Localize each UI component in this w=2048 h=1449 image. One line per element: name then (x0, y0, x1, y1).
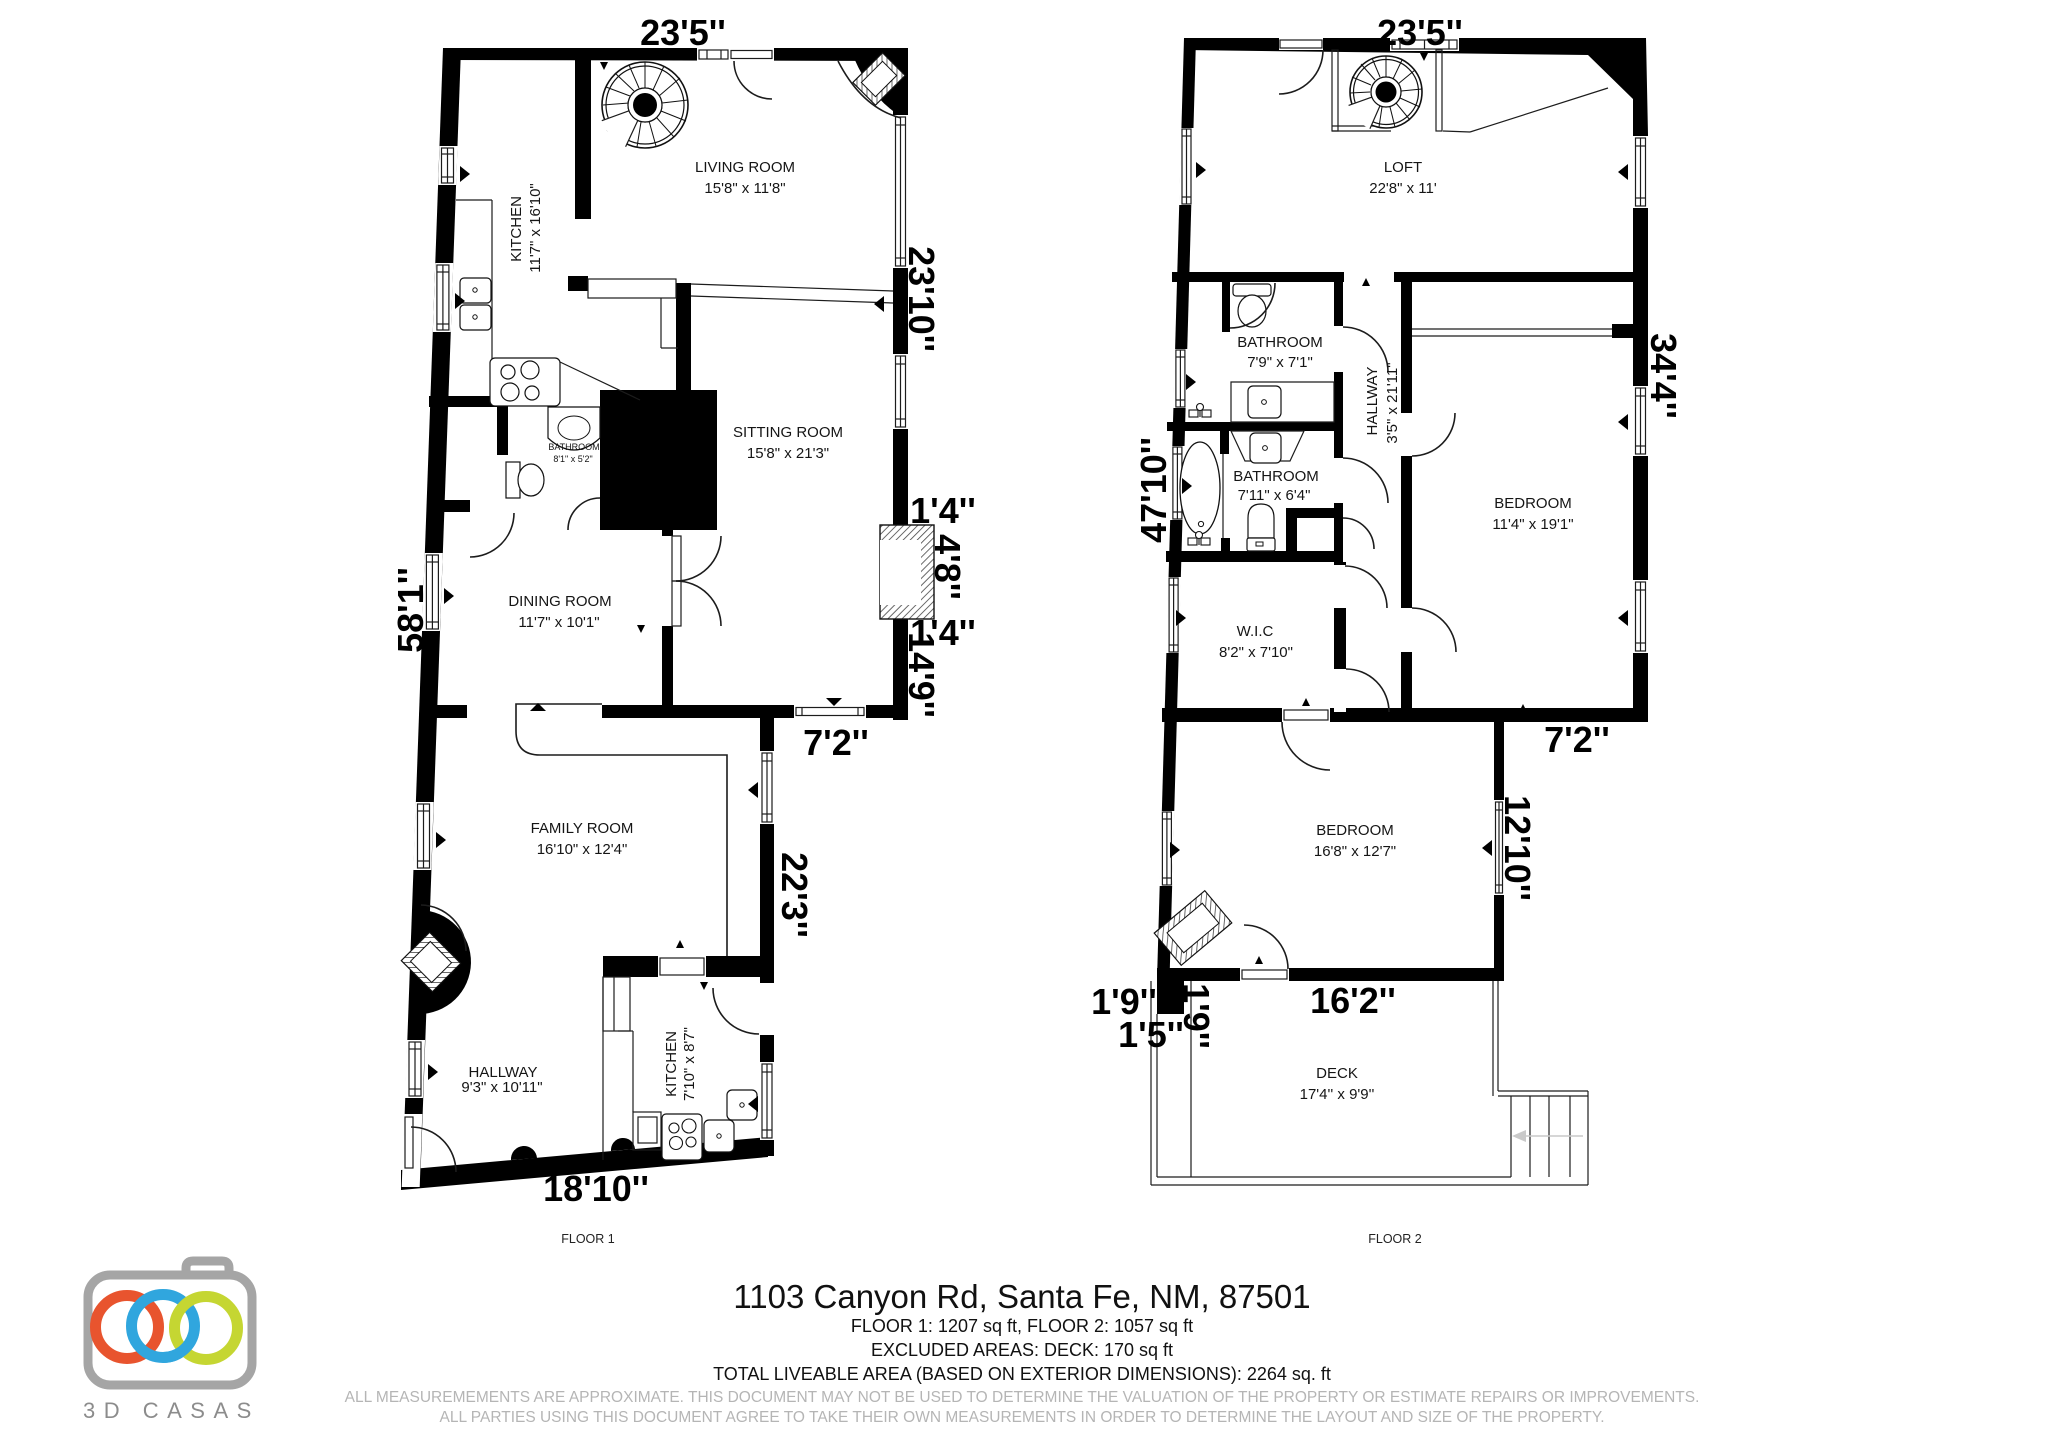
svg-text:1'9'': 1'9'' (1176, 983, 1217, 1049)
svg-text:KITCHEN: KITCHEN (508, 196, 525, 262)
svg-text:DINING ROOM: DINING ROOM (508, 593, 611, 610)
svg-text:FLOOR 1: FLOOR 1 (561, 1232, 615, 1246)
svg-text:23'10'': 23'10'' (901, 246, 942, 352)
svg-text:BATHROOM: BATHROOM (548, 442, 599, 452)
svg-text:16'2'': 16'2'' (1310, 980, 1396, 1021)
svg-text:11'7" x 16'10": 11'7" x 16'10" (527, 183, 544, 273)
svg-text:58'1'': 58'1'' (390, 567, 431, 653)
svg-text:15'8" x 21'3": 15'8" x 21'3" (747, 445, 829, 462)
svg-text:1103 Canyon Rd, Santa Fe, NM,: 1103 Canyon Rd, Santa Fe, NM, 87501 (733, 1278, 1310, 1315)
svg-text:1'5'': 1'5'' (1118, 1014, 1184, 1055)
svg-text:LIVING ROOM: LIVING ROOM (695, 159, 795, 176)
svg-text:11'7" x 10'1": 11'7" x 10'1" (518, 614, 599, 631)
svg-text:22'3'': 22'3'' (774, 852, 815, 938)
svg-text:47'10'': 47'10'' (1133, 437, 1174, 543)
svg-text:LOFT: LOFT (1384, 159, 1422, 176)
svg-text:7'2'': 7'2'' (803, 722, 869, 763)
svg-text:12'10'': 12'10'' (1497, 795, 1538, 901)
svg-text:16'10" x 12'4": 16'10" x 12'4" (537, 841, 628, 858)
svg-text:BEDROOM: BEDROOM (1316, 822, 1394, 839)
svg-text:HALLWAY: HALLWAY (1364, 367, 1381, 436)
svg-text:FLOOR 2: FLOOR 2 (1368, 1232, 1422, 1246)
svg-text:TOTAL LIVEABLE AREA (BASED ON: TOTAL LIVEABLE AREA (BASED ON EXTERIOR D… (713, 1364, 1331, 1384)
svg-text:FAMILY ROOM: FAMILY ROOM (531, 820, 634, 837)
svg-text:8'1" x 5'2": 8'1" x 5'2" (553, 454, 592, 464)
svg-text:7'9" x 7'1": 7'9" x 7'1" (1247, 354, 1313, 371)
svg-text:BEDROOM: BEDROOM (1494, 495, 1572, 512)
svg-text:3'5" x 21'11": 3'5" x 21'11" (1384, 362, 1401, 443)
svg-text:22'8" x 11': 22'8" x 11' (1369, 180, 1437, 197)
svg-text:BATHROOM: BATHROOM (1233, 468, 1319, 485)
svg-text:3D CASAS: 3D CASAS (83, 1398, 260, 1423)
svg-text:23'5'': 23'5'' (1377, 12, 1463, 53)
svg-text:ALL PARTIES USING THIS DOCUMEN: ALL PARTIES USING THIS DOCUMENT AGREE TO… (439, 1409, 1604, 1426)
svg-text:17'4'' x 9'9'': 17'4'' x 9'9'' (1300, 1086, 1375, 1103)
svg-text:DECK: DECK (1316, 1065, 1358, 1082)
svg-text:ALL MEASUREMEMENTS ARE APPROXI: ALL MEASUREMEMENTS ARE APPROXIMATE. THIS… (345, 1389, 1700, 1406)
svg-text:15'8" x 11'8": 15'8" x 11'8" (704, 180, 785, 197)
svg-text:FLOOR 1: 1207 sq ft, FLOOR 2:: FLOOR 1: 1207 sq ft, FLOOR 2: 1057 sq ft (851, 1316, 1193, 1336)
svg-text:8'2" x 7'10": 8'2" x 7'10" (1219, 644, 1293, 661)
svg-text:14'9'': 14'9'' (901, 632, 942, 718)
svg-text:7'10" x 8'7": 7'10" x 8'7" (681, 1027, 698, 1101)
svg-text:11'4" x 19'1": 11'4" x 19'1" (1492, 516, 1573, 533)
svg-text:4'8'': 4'8'' (927, 534, 968, 600)
svg-text:BATHROOM: BATHROOM (1237, 334, 1323, 351)
svg-text:1'4'': 1'4'' (910, 490, 976, 531)
svg-text:7'11" x 6'4": 7'11" x 6'4" (1238, 487, 1311, 504)
svg-text:23'5'': 23'5'' (640, 12, 726, 53)
svg-text:18'10'': 18'10'' (543, 1168, 649, 1209)
svg-text:EXCLUDED AREAS: DECK: 170 sq f: EXCLUDED AREAS: DECK: 170 sq ft (871, 1340, 1173, 1360)
svg-text:KITCHEN: KITCHEN (663, 1031, 680, 1097)
svg-text:W.I.C: W.I.C (1237, 623, 1274, 640)
svg-text:7'2'': 7'2'' (1544, 719, 1610, 760)
svg-text:9'3" x 10'11": 9'3" x 10'11" (461, 1079, 542, 1096)
svg-text:34'4'': 34'4'' (1643, 333, 1684, 419)
svg-text:16'8" x 12'7": 16'8" x 12'7" (1314, 843, 1396, 860)
svg-text:SITTING ROOM: SITTING ROOM (733, 424, 843, 441)
